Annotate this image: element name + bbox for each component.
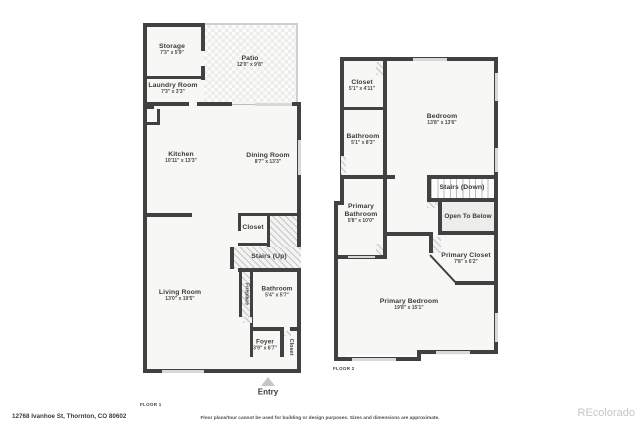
wall-segment xyxy=(438,202,442,234)
door-marker xyxy=(284,331,291,336)
wall-segment xyxy=(197,102,232,106)
wall-segment xyxy=(201,27,205,51)
room-name: Stairs (Up) xyxy=(251,253,286,261)
fireplace-hatch xyxy=(243,317,252,323)
room-label-living: Living Room 13'0" x 19'5" xyxy=(159,289,201,303)
opening xyxy=(348,256,375,258)
patio-fence-right xyxy=(296,23,298,103)
room-label-fireplace: Fireplace xyxy=(244,283,250,305)
room-name: Primary Bathroom xyxy=(338,203,384,219)
room-label-bathroom2: Bathroom 5'1" x 8'3" xyxy=(347,133,380,147)
disclaimer-text: Floor plans/tour cannot be used for buil… xyxy=(200,416,439,421)
room-dims: 3'9" x 6'7" xyxy=(253,346,277,352)
window xyxy=(352,358,396,361)
wall-segment xyxy=(230,247,234,269)
window xyxy=(495,148,498,172)
window xyxy=(436,351,470,354)
brand-watermark: REcolorado xyxy=(578,407,635,419)
wall-segment xyxy=(334,205,338,361)
wall-segment xyxy=(201,66,205,80)
door-marker xyxy=(433,237,441,253)
wall-segment xyxy=(438,231,498,235)
room-dims: 7'8" x 6'2" xyxy=(441,260,490,266)
wall-segment xyxy=(143,23,205,27)
window xyxy=(413,58,447,61)
floor2-interior xyxy=(338,205,346,357)
room-dims: 5'1" x 4'11" xyxy=(349,87,375,93)
entry-arrow-icon xyxy=(261,377,275,386)
room-dims: 13'8" x 13'6" xyxy=(427,121,458,127)
room-label-primary-closet: Primary Closet 7'8" x 6'2" xyxy=(441,252,490,266)
room-label-bedroom: Bedroom 13'8" x 13'6" xyxy=(427,113,458,127)
sliding-door xyxy=(255,103,292,106)
room-dims: 8'7" x 13'3" xyxy=(246,160,289,166)
wall-segment xyxy=(344,107,383,110)
room-dims: 7'3" x 5'9" xyxy=(159,51,185,57)
room-name: Open To Below xyxy=(444,213,491,221)
wall-segment xyxy=(238,216,241,231)
wall-segment xyxy=(290,327,301,331)
wall-segment xyxy=(387,232,433,236)
room-dims: 10'11" x 13'3" xyxy=(165,159,197,165)
room-label-primary-bedroom: Primary Bedroom 19'8" x 15'1" xyxy=(380,298,439,312)
room-label-closet2: Closet 5'1" x 4'11" xyxy=(349,79,375,93)
room-label-foyer-closet: Closet xyxy=(288,339,294,356)
wall-segment xyxy=(147,106,154,109)
room-dims: 5'4" x 5'7" xyxy=(262,293,293,299)
window xyxy=(298,140,301,175)
room-label-open-to-below: Open To Below xyxy=(444,213,491,221)
room-label-primary-bathroom: Primary Bathroom 5'8" x 10'0" xyxy=(338,203,384,225)
room-label-bathroom: Bathroom 5'4" x 5'7" xyxy=(262,285,293,298)
wall-segment xyxy=(292,102,301,106)
wall-segment xyxy=(455,281,498,285)
room-label-foyer: Foyer 3'9" x 6'7" xyxy=(253,338,277,351)
floor2-tag: FLOOR 2 xyxy=(333,366,355,371)
wall-segment xyxy=(147,122,160,125)
room-label-kitchen: Kitchen 10'11" x 13'3" xyxy=(165,151,197,165)
room-label-dining: Dining Room 8'7" x 13'3" xyxy=(246,152,289,166)
room-label-storage: Storage 7'3" x 5'9" xyxy=(159,43,185,57)
room-label-patio: Patio 12'0" x 9'8" xyxy=(237,55,264,69)
floor1-tag: FLOOR 1 xyxy=(140,402,162,407)
wall-segment xyxy=(147,213,192,217)
room-label-laundry: Laundry Room 7'3" x 3'3" xyxy=(148,82,197,96)
property-address: 12768 Ivanhoe St, Thornton, CO 80602 xyxy=(12,413,126,420)
room-name: Closet xyxy=(242,224,263,232)
window xyxy=(162,370,204,373)
door-marker xyxy=(341,156,346,175)
stairs-hatch xyxy=(270,216,297,247)
room-dims: 12'0" x 9'8" xyxy=(237,63,264,69)
room-dims: 7'3" x 3'3" xyxy=(148,90,197,96)
room-dims: 13'0" x 19'5" xyxy=(159,297,201,303)
room-name: Stairs (Down) xyxy=(439,184,484,192)
wall-segment xyxy=(238,243,270,246)
patio-fence-top xyxy=(204,23,298,25)
wall-segment xyxy=(383,61,387,258)
floor-plan-page: Storage 7'3" x 5'9" Patio 12'0" x 9'8" L… xyxy=(0,0,640,426)
wall-segment xyxy=(344,175,395,179)
room-label-stairs-down: Stairs (Down) xyxy=(439,184,484,192)
room-dims: 5'1" x 8'3" xyxy=(347,141,380,147)
window xyxy=(495,73,498,101)
door-marker xyxy=(376,62,383,75)
room-label-closet: Closet xyxy=(242,224,263,232)
window xyxy=(495,313,498,342)
entry-label: Entry xyxy=(258,388,278,397)
room-dims: 19'8" x 15'1" xyxy=(380,306,439,312)
wall-segment xyxy=(340,57,344,205)
room-dims: 5'8" x 10'0" xyxy=(338,219,384,225)
opening-line xyxy=(232,104,255,105)
wall-segment xyxy=(494,57,498,352)
room-label-stairs-up: Stairs (Up) xyxy=(251,253,286,261)
wall-segment xyxy=(147,76,201,79)
